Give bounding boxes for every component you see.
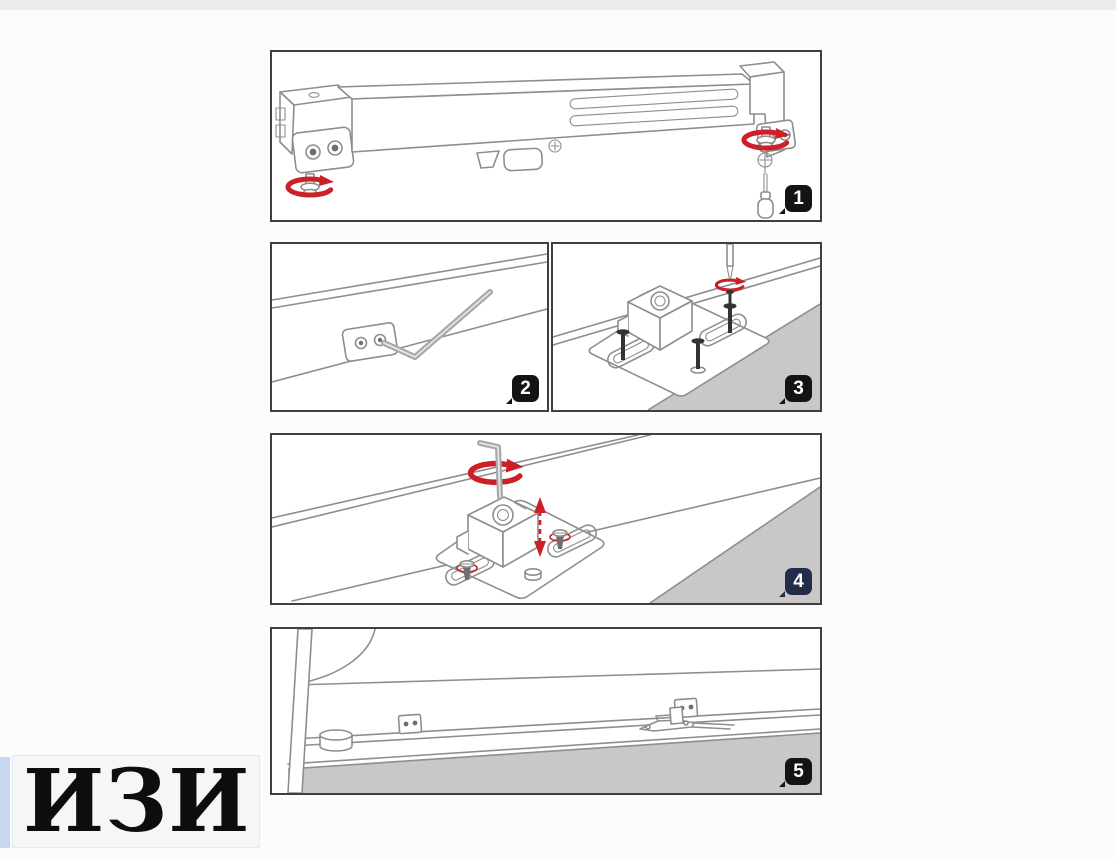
watermark-edge-strip bbox=[0, 757, 10, 848]
step-3-illustration bbox=[553, 244, 820, 410]
watermark: ИЗИ bbox=[12, 755, 260, 848]
instruction-sheet: 1 2 bbox=[0, 0, 1116, 858]
step-4-panel: 4 bbox=[270, 433, 822, 605]
left-end-bracket bbox=[276, 85, 354, 173]
step-2-panel: 2 bbox=[270, 242, 549, 412]
step-5-illustration bbox=[272, 629, 820, 793]
top-strip bbox=[0, 0, 1116, 10]
step-4-illustration bbox=[272, 435, 820, 603]
step-2-illustration bbox=[272, 244, 547, 410]
watermark-text: ИЗИ bbox=[13, 759, 251, 845]
step-1-illustration bbox=[272, 52, 820, 220]
step-number: 4 bbox=[793, 572, 804, 591]
allen-key-icon bbox=[384, 292, 490, 357]
cabinet-panel-lines bbox=[272, 254, 547, 382]
bracket-plate bbox=[398, 714, 421, 733]
step-number-badge: 3 bbox=[785, 375, 812, 402]
rail bbox=[338, 74, 754, 171]
screw-icon bbox=[726, 290, 734, 304]
step-number-badge: 5 bbox=[785, 758, 812, 785]
step-number-badge: 1 bbox=[785, 185, 812, 212]
step-number-badge: 2 bbox=[512, 375, 539, 402]
step-1-panel: 1 bbox=[270, 50, 822, 222]
bracket-plate bbox=[342, 322, 398, 362]
screw-icon bbox=[525, 569, 541, 580]
rotation-arrow-icon bbox=[288, 174, 334, 195]
door-stopper bbox=[320, 730, 352, 751]
step-number-badge: 4 bbox=[785, 568, 812, 595]
step-3-panel: 3 bbox=[551, 242, 822, 412]
step-number: 2 bbox=[520, 379, 531, 398]
screwdriver-icon bbox=[727, 244, 733, 281]
step-number: 1 bbox=[793, 189, 804, 208]
step-number: 3 bbox=[793, 379, 804, 398]
step-number: 5 bbox=[793, 762, 804, 781]
screwdriver-icon bbox=[758, 174, 773, 218]
step-5-panel: 5 bbox=[270, 627, 822, 795]
